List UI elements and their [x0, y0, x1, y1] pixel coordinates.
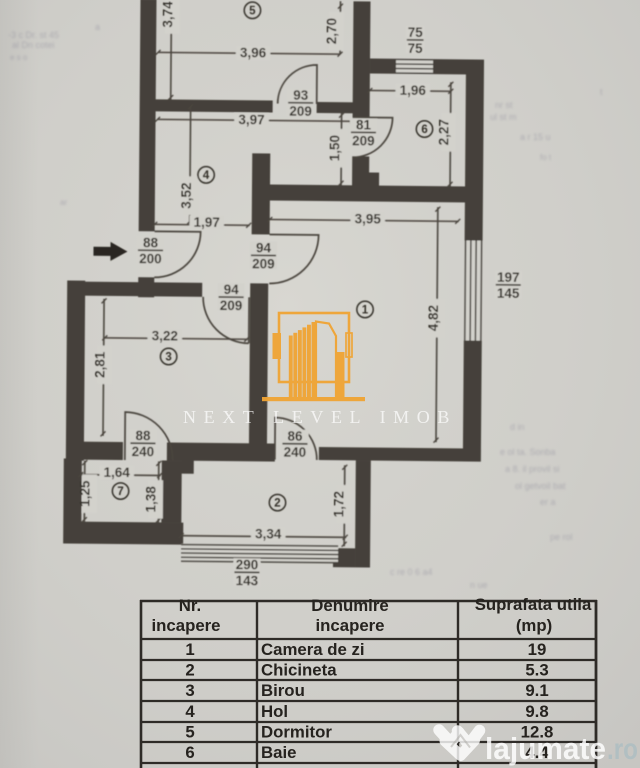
svg-text:200: 200	[139, 251, 162, 266]
svg-text:1,25: 1,25	[77, 480, 92, 507]
svg-text:ol getvoil bat: ol getvoil bat	[515, 481, 566, 491]
svg-text:88: 88	[135, 428, 151, 443]
svg-text:Suprafata utila: Suprafata utila	[475, 595, 592, 614]
svg-text:pe rol: pe rol	[550, 532, 573, 542]
svg-text:1,64: 1,64	[104, 465, 131, 480]
svg-text:Baie: Baie	[261, 743, 296, 762]
svg-text:3,97: 3,97	[238, 112, 264, 127]
svg-text:Camera de zi: Camera de zi	[261, 640, 365, 659]
svg-text:1: 1	[362, 305, 369, 317]
svg-text:ul st m: ul st m	[490, 112, 517, 122]
svg-text:3: 3	[185, 681, 194, 700]
svg-text:2,27: 2,27	[436, 119, 451, 145]
svg-text:n ue: n ue	[470, 580, 488, 590]
svg-text:ar: ar	[60, 198, 67, 207]
svg-text:e ol ta. Sonba: e ol ta. Sonba	[500, 447, 556, 457]
svg-text:Denumire: Denumire	[311, 596, 388, 615]
svg-text:9.1: 9.1	[525, 681, 548, 700]
svg-text:4: 4	[203, 170, 210, 182]
svg-text:5: 5	[185, 723, 194, 742]
svg-text:3,96: 3,96	[240, 45, 267, 60]
svg-text:86: 86	[287, 429, 303, 444]
svg-text:209: 209	[289, 104, 312, 119]
svg-text:240: 240	[284, 445, 307, 460]
svg-text:al Dn cotei: al Dn cotei	[12, 40, 55, 50]
svg-text:75: 75	[408, 25, 424, 40]
svg-text:3,52: 3,52	[179, 182, 194, 208]
svg-text:incapere: incapere	[315, 616, 384, 635]
svg-text:.ro: .ro	[607, 733, 638, 766]
svg-text:9.8: 9.8	[525, 702, 548, 721]
svg-text:NEXT LEVEL IMOB: NEXT LEVEL IMOB	[183, 407, 457, 427]
svg-text:Nr.: Nr.	[179, 596, 201, 615]
svg-text:209: 209	[352, 133, 375, 148]
svg-text:3,95: 3,95	[355, 211, 382, 226]
svg-text:94: 94	[224, 282, 240, 297]
svg-text:c re 0 6 a4: c re 0 6 a4	[390, 567, 433, 577]
svg-text:3: 3	[165, 352, 172, 364]
svg-text:1,38: 1,38	[143, 486, 158, 513]
svg-text:er a: er a	[540, 497, 556, 507]
svg-text:2,81: 2,81	[92, 351, 107, 378]
svg-text:e s o: e s o	[10, 53, 28, 62]
svg-text:5.3: 5.3	[525, 661, 548, 680]
svg-text:lajumate: lajumate	[485, 731, 606, 766]
svg-text:1,72: 1,72	[331, 491, 346, 517]
svg-text:240: 240	[132, 444, 155, 459]
svg-text:1,96: 1,96	[400, 83, 427, 98]
svg-text:2: 2	[274, 498, 281, 510]
svg-text:81: 81	[356, 117, 372, 132]
svg-text:incapere: incapere	[151, 616, 220, 635]
svg-text:Chicineta: Chicineta	[261, 661, 337, 680]
svg-text:1: 1	[185, 640, 194, 659]
svg-text:4,82: 4,82	[426, 305, 441, 331]
svg-text:3,22: 3,22	[152, 328, 178, 343]
svg-text:d in: d in	[510, 422, 525, 432]
svg-text:a: a	[95, 22, 100, 32]
svg-text:290: 290	[236, 557, 259, 572]
svg-text:145: 145	[497, 286, 520, 301]
svg-text:6: 6	[185, 743, 194, 762]
svg-text:143: 143	[236, 573, 259, 588]
svg-text:94: 94	[256, 240, 272, 255]
svg-text:(mp): (mp)	[516, 616, 552, 635]
svg-text:Dormitor: Dormitor	[261, 723, 332, 742]
svg-text:1,50: 1,50	[327, 135, 342, 161]
svg-text:6: 6	[421, 124, 428, 136]
svg-text:88: 88	[143, 235, 159, 250]
svg-text:209: 209	[220, 298, 243, 313]
svg-text:a r 15 u: a r 15 u	[520, 132, 551, 142]
svg-text:75: 75	[408, 41, 424, 56]
svg-text:1,97: 1,97	[194, 215, 220, 230]
svg-text:a 8. il provil si: a 8. il provil si	[505, 464, 560, 474]
svg-text:nr st: nr st	[495, 100, 513, 110]
svg-text:209: 209	[252, 256, 275, 271]
svg-text:93: 93	[293, 88, 309, 103]
svg-text:19: 19	[528, 640, 547, 659]
svg-text:Birou: Birou	[261, 681, 305, 700]
svg-text:2: 2	[185, 661, 194, 680]
svg-text:Hol: Hol	[261, 702, 288, 721]
svg-text:-3 c Dr. st 45: -3 c Dr. st 45	[8, 30, 59, 40]
svg-text:3,74: 3,74	[160, 1, 175, 28]
svg-text:5: 5	[249, 5, 256, 17]
svg-text:4: 4	[185, 702, 195, 721]
svg-text:197: 197	[497, 270, 520, 285]
svg-text:7: 7	[117, 486, 124, 498]
svg-text:3,34: 3,34	[255, 526, 282, 541]
svg-text:fo t: fo t	[540, 153, 552, 162]
svg-text:2,70: 2,70	[324, 18, 339, 44]
